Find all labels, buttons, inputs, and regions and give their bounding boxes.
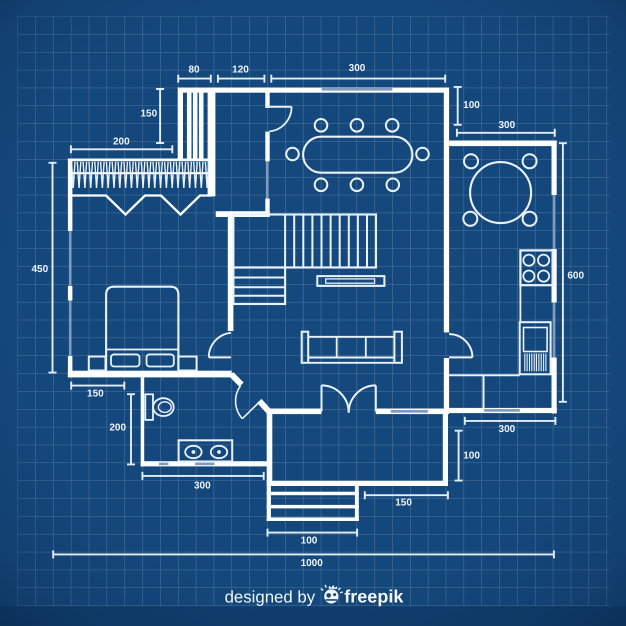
svg-text:freepik: freepik <box>344 587 404 607</box>
svg-text:300: 300 <box>499 424 516 435</box>
svg-text:200: 200 <box>113 137 130 148</box>
svg-text:1000: 1000 <box>301 558 324 569</box>
svg-text:150: 150 <box>87 388 104 399</box>
svg-text:100: 100 <box>463 100 480 111</box>
svg-text:450: 450 <box>31 264 48 275</box>
svg-text:300: 300 <box>349 63 366 74</box>
svg-text:300: 300 <box>498 120 515 131</box>
svg-text:150: 150 <box>395 497 412 508</box>
svg-text:600: 600 <box>567 271 584 282</box>
svg-text:200: 200 <box>109 423 126 434</box>
svg-text:80: 80 <box>188 65 200 76</box>
svg-text:120: 120 <box>232 65 249 76</box>
svg-text:150: 150 <box>140 109 157 120</box>
svg-text:300: 300 <box>194 481 211 492</box>
svg-text:100: 100 <box>301 536 318 547</box>
svg-text:100: 100 <box>463 450 480 461</box>
svg-text:designed by: designed by <box>225 588 316 607</box>
